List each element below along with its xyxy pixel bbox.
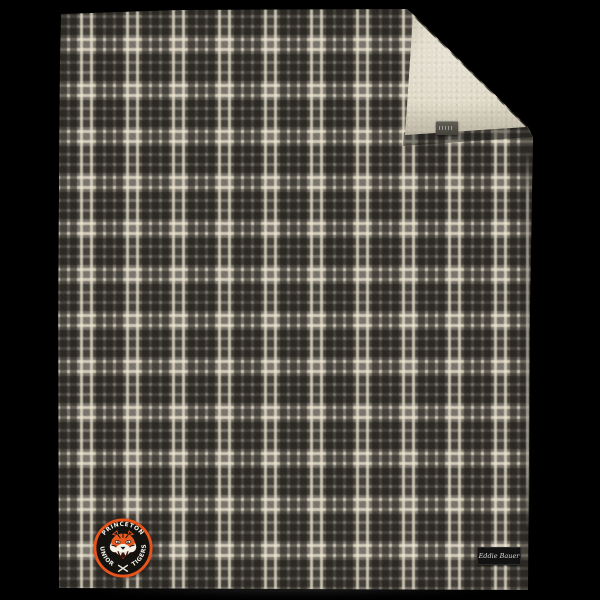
eddie-bauer-label: Eddie Bauer [477, 547, 521, 565]
sherpa-edge-highlight [526, 150, 529, 530]
princeton-tigers-logo-patch: PRINCETON JUNIOR TIGERS [92, 517, 154, 579]
logo-patch-svg: PRINCETON JUNIOR TIGERS [92, 517, 154, 579]
fold-brand-tag [436, 121, 458, 135]
eddie-bauer-label-text: Eddie Bauer [479, 552, 520, 560]
sherpa-folded-corner [403, 12, 531, 140]
product-photo-stage: PRINCETON JUNIOR TIGERS [0, 0, 600, 600]
